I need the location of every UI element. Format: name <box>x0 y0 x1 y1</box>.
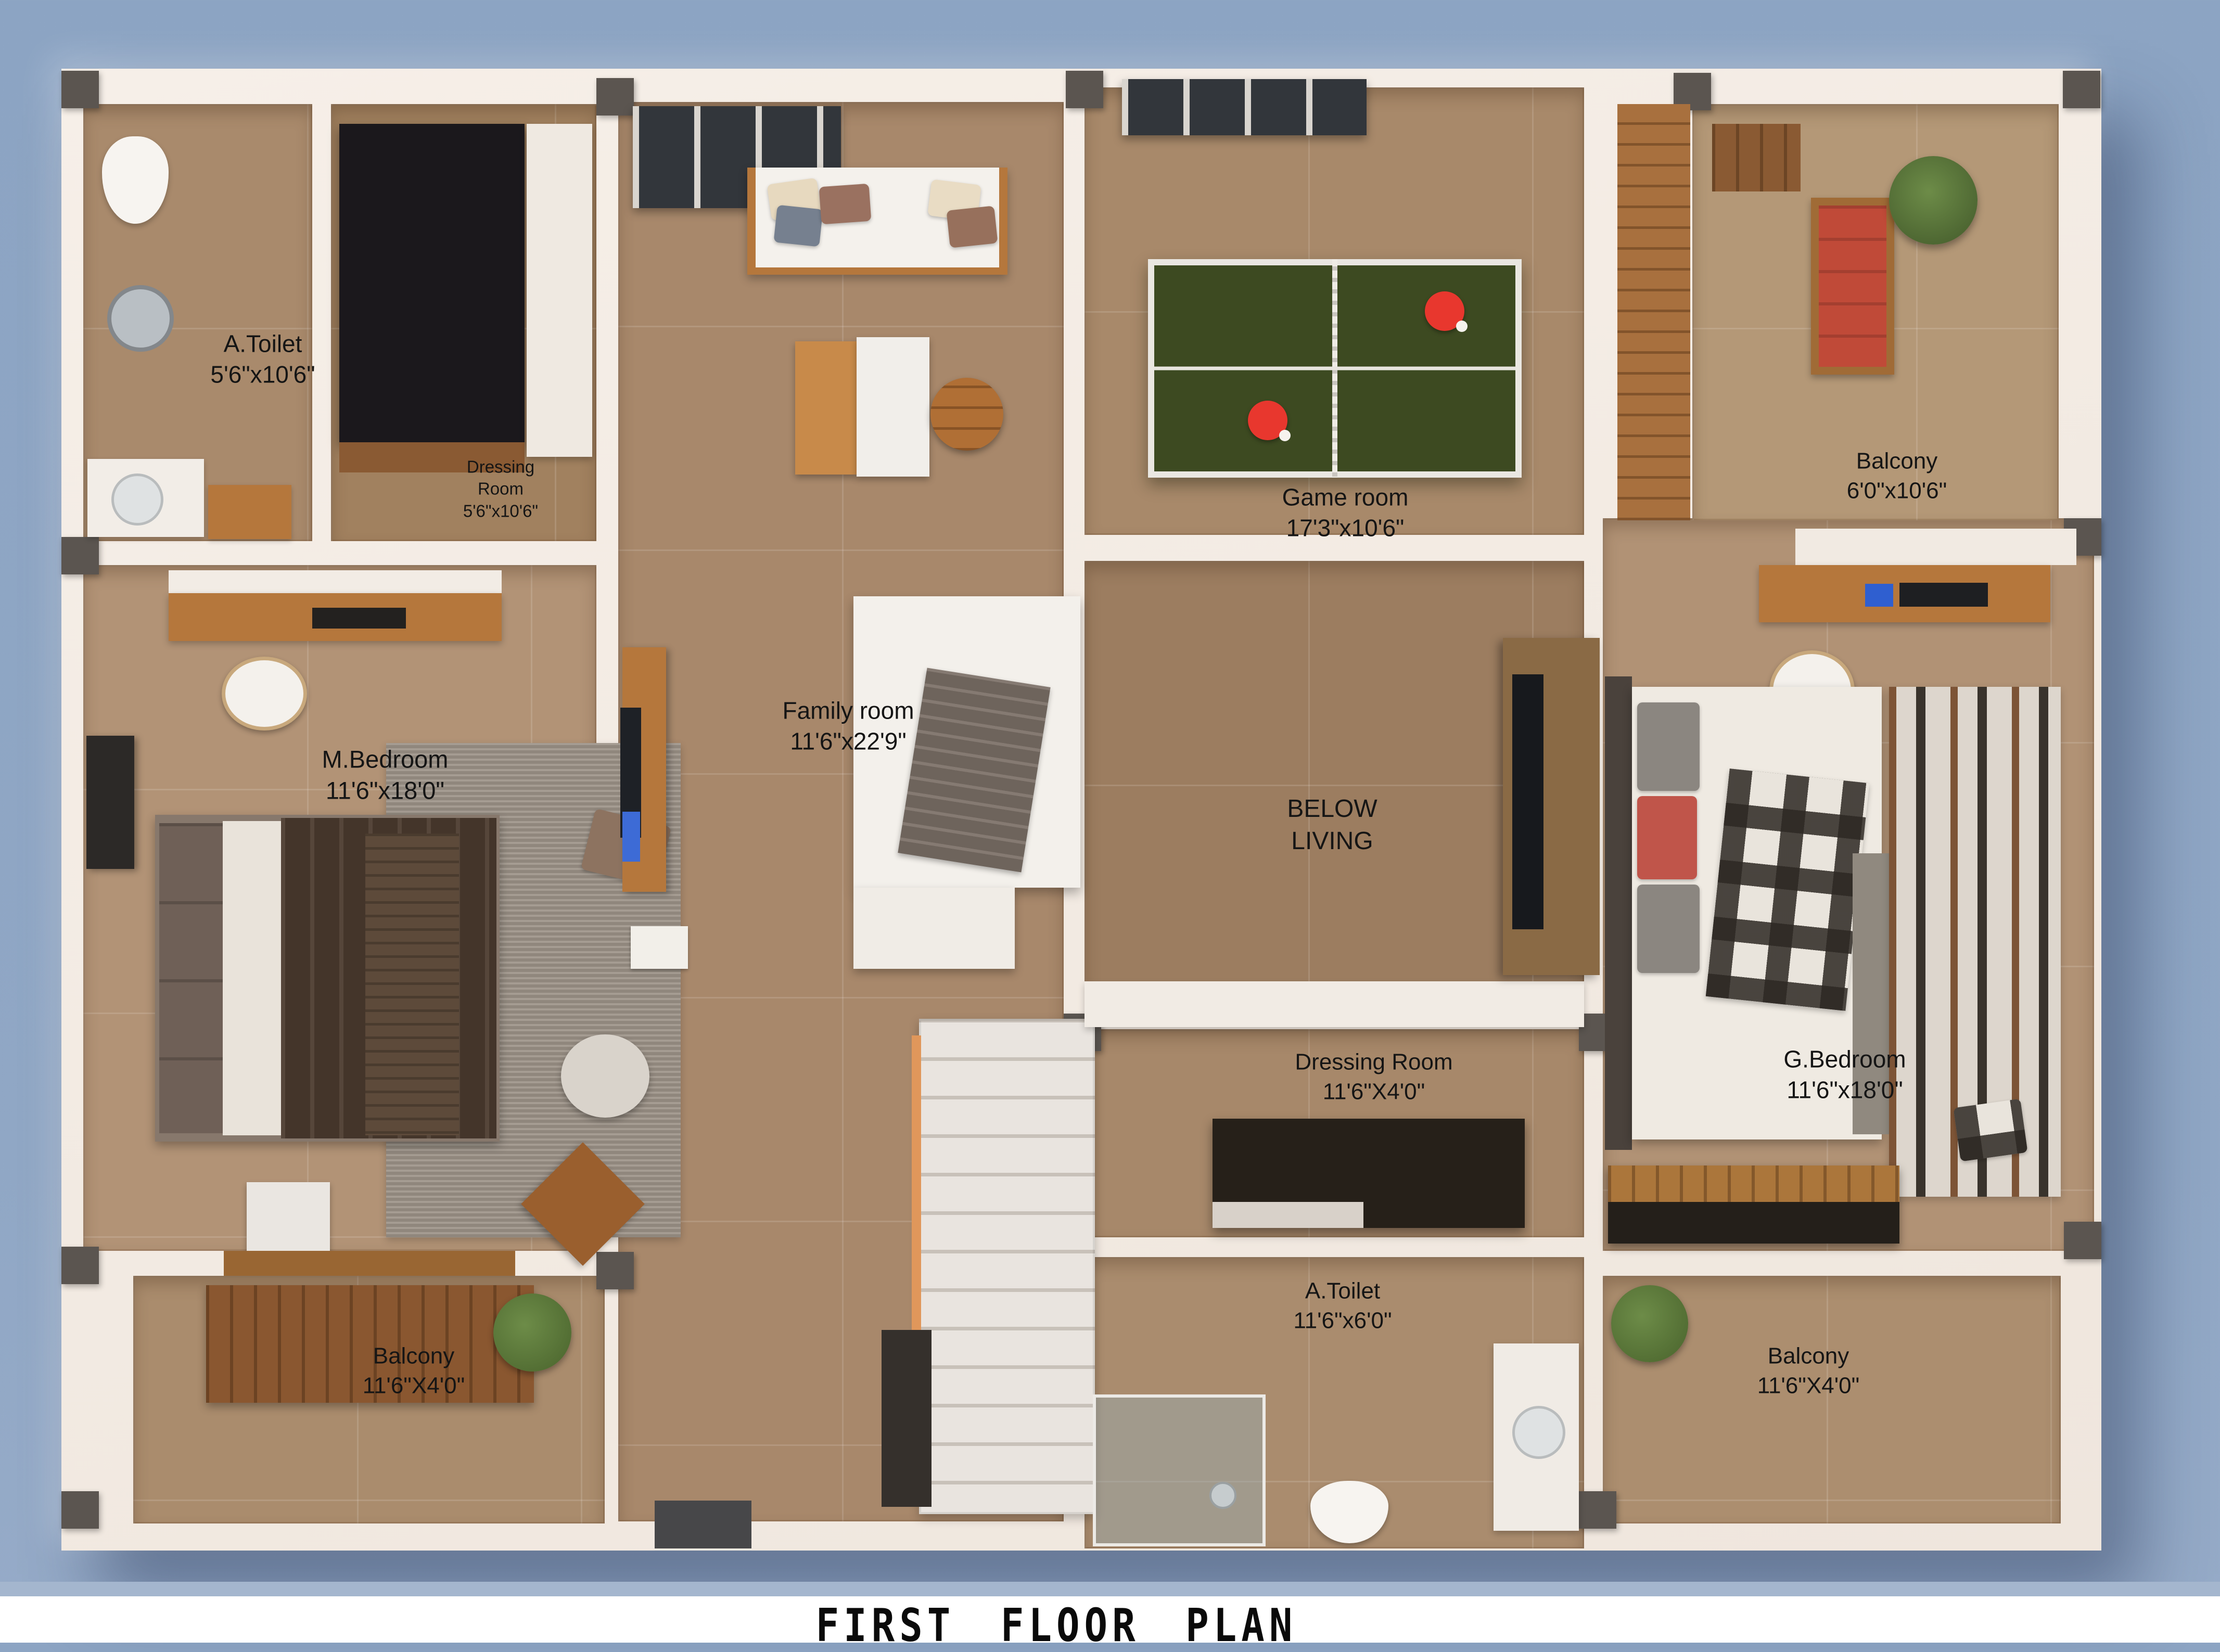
label-a-toilet-top-left: A.Toilet 5'6"x10'6" <box>210 298 315 420</box>
label-balcony-bottom-left: Balcony 11'6"X4'0" <box>363 1312 465 1429</box>
dressing-cabinet <box>527 124 592 457</box>
ping-pong-paddle <box>1425 291 1464 331</box>
rug-magazine <box>631 926 688 969</box>
round-pouf <box>561 1034 649 1118</box>
wall-column-cap <box>2063 71 2100 108</box>
round-side-table <box>930 378 1003 451</box>
room-name: Balcony <box>1856 449 1938 474</box>
room-dims: 11'6"x18'0" <box>322 775 449 806</box>
label-g-bedroom: G.Bedroom 11'6"x18'0" <box>1783 1013 1906 1136</box>
label-m-bedroom: M.Bedroom 11'6"x18'0" <box>322 713 449 838</box>
sofa-arm-left <box>747 168 756 275</box>
bedroom-wall-shelf <box>169 570 502 593</box>
room-name: BELOW LIVING <box>1287 795 1377 854</box>
stair-mat <box>882 1330 932 1507</box>
wall-column-cap <box>2064 1222 2101 1259</box>
room-dims: 11'6"X4'0" <box>1295 1077 1452 1106</box>
desk-mousepad <box>1865 584 1893 607</box>
room-dims: 11'6"x18'0" <box>1783 1074 1906 1105</box>
round-mirror <box>107 285 174 352</box>
label-game-room: Game room 17'3"x10'6" <box>1282 451 1409 574</box>
sofa-rail <box>747 267 1007 275</box>
stair-handrail <box>912 1035 921 1358</box>
shower-drain <box>1209 1482 1236 1509</box>
shower-enclosure <box>1093 1394 1266 1546</box>
tv-blue-accent <box>622 812 640 862</box>
media-wall-tv <box>1512 674 1543 929</box>
label-a-toilet-center: A.Toilet 11'6"x6'0" <box>1293 1247 1392 1364</box>
label-balcony-top-right: Balcony 6'0"x10'6" <box>1847 417 1947 534</box>
room-dims: 11'6"x22'9" <box>782 726 914 757</box>
wall-column-cap <box>1579 1491 1616 1529</box>
coffee-table-white <box>857 337 929 477</box>
room-name: A.Toilet <box>1305 1278 1380 1304</box>
potted-plant <box>1611 1285 1688 1362</box>
room-dims: 6'0"x10'6" <box>1847 476 1947 505</box>
bed-sheet-band <box>223 821 281 1135</box>
room-name: Dressing Room <box>467 457 534 498</box>
sofa-arm-right <box>999 168 1007 275</box>
room-dims: 5'6"x10'6" <box>210 359 315 390</box>
gbed-headboard <box>1605 676 1632 1150</box>
label-below-living: BELOW LIVING <box>1287 761 1377 857</box>
wall-column-cap <box>596 78 634 116</box>
room-dims: 11'6"X4'0" <box>363 1371 465 1400</box>
ping-pong-paddle <box>1248 401 1287 440</box>
plaid-throw <box>1706 769 1870 1011</box>
wall-column-cap <box>596 1252 634 1289</box>
wash-basin <box>111 473 163 526</box>
wall-column-cap <box>1066 71 1103 108</box>
label-dressing-center: Dressing Room 11'6"X4'0" <box>1295 1018 1452 1135</box>
floor-plan-canvas: A.Toilet 5'6"x10'6" Dressing Room 5'6"x1… <box>61 69 2101 1551</box>
bed-pillow <box>1637 702 1700 791</box>
room-name: Balcony <box>373 1343 455 1369</box>
bed-pillow <box>1637 796 1697 879</box>
coffee-table-wood <box>795 341 857 475</box>
entry-mat <box>655 1501 751 1548</box>
toilet-side-desk <box>208 485 291 539</box>
potted-plant <box>1889 156 1977 245</box>
label-balcony-bottom-right: Balcony 11'6"X4'0" <box>1757 1312 1859 1429</box>
label-dressing-top-left: Dressing Room 5'6"x10'6" <box>463 434 538 544</box>
sofa-pillow <box>946 206 998 248</box>
wash-basin <box>1512 1406 1565 1459</box>
wall-tv <box>86 736 134 869</box>
room-name: Balcony <box>1768 1343 1849 1369</box>
balcony-door-threshold <box>224 1251 515 1276</box>
room-dims: 11'6"x6'0" <box>1293 1306 1392 1335</box>
room-name: M.Bedroom <box>322 746 449 773</box>
ping-pong-table <box>1148 259 1522 478</box>
room-name: Dressing Room <box>1295 1049 1452 1075</box>
room-name: A.Toilet <box>224 330 302 357</box>
bed-headboard-cushions <box>159 823 223 1133</box>
sectional-chaise <box>853 888 1015 969</box>
desk-keyboard <box>1899 583 1988 607</box>
rug-cushion <box>1953 1098 2027 1161</box>
room-name: Game room <box>1282 483 1409 510</box>
wall-column-cap <box>61 537 99 574</box>
room-name: Family room <box>782 697 914 724</box>
bed-throw-blanket <box>365 834 459 1135</box>
room-dims: 5'6"x10'6" <box>463 500 538 522</box>
deck-strip <box>1617 104 1690 520</box>
bed-pillow <box>1637 885 1700 973</box>
wall-column-cap <box>61 1247 99 1284</box>
sofa-pillow <box>773 205 823 247</box>
room-name: G.Bedroom <box>1783 1045 1906 1072</box>
label-family-room: Family room 11'6"x22'9" <box>782 664 914 787</box>
wardrobe-dark <box>339 124 525 442</box>
skylight-window <box>1122 79 1367 135</box>
staircase <box>919 1019 1095 1514</box>
background-strip <box>0 1582 2220 1596</box>
wall-column-cap <box>61 71 99 108</box>
wall-column-cap <box>61 1491 99 1529</box>
ping-pong-centerline <box>1154 367 1515 370</box>
potted-plant <box>493 1294 571 1372</box>
desk-keyboard <box>312 608 406 629</box>
dressing-island-top <box>1213 1202 1363 1228</box>
plan-title: FIRST FLOOR PLAN <box>0 1599 2113 1652</box>
balcony-wood-chair <box>1712 124 1801 191</box>
lounge-chair-cushion <box>1819 206 1886 367</box>
room-dims: 11'6"X4'0" <box>1757 1371 1859 1400</box>
gbed-bench-wood-top <box>1608 1166 1899 1202</box>
desk-chair <box>222 657 307 731</box>
sofa-pillow <box>819 184 872 225</box>
floor-plan-page: { "title": "FIRST FLOOR PLAN", "colors":… <box>0 0 2220 1643</box>
room-dims: 17'3"x10'6" <box>1282 513 1409 543</box>
